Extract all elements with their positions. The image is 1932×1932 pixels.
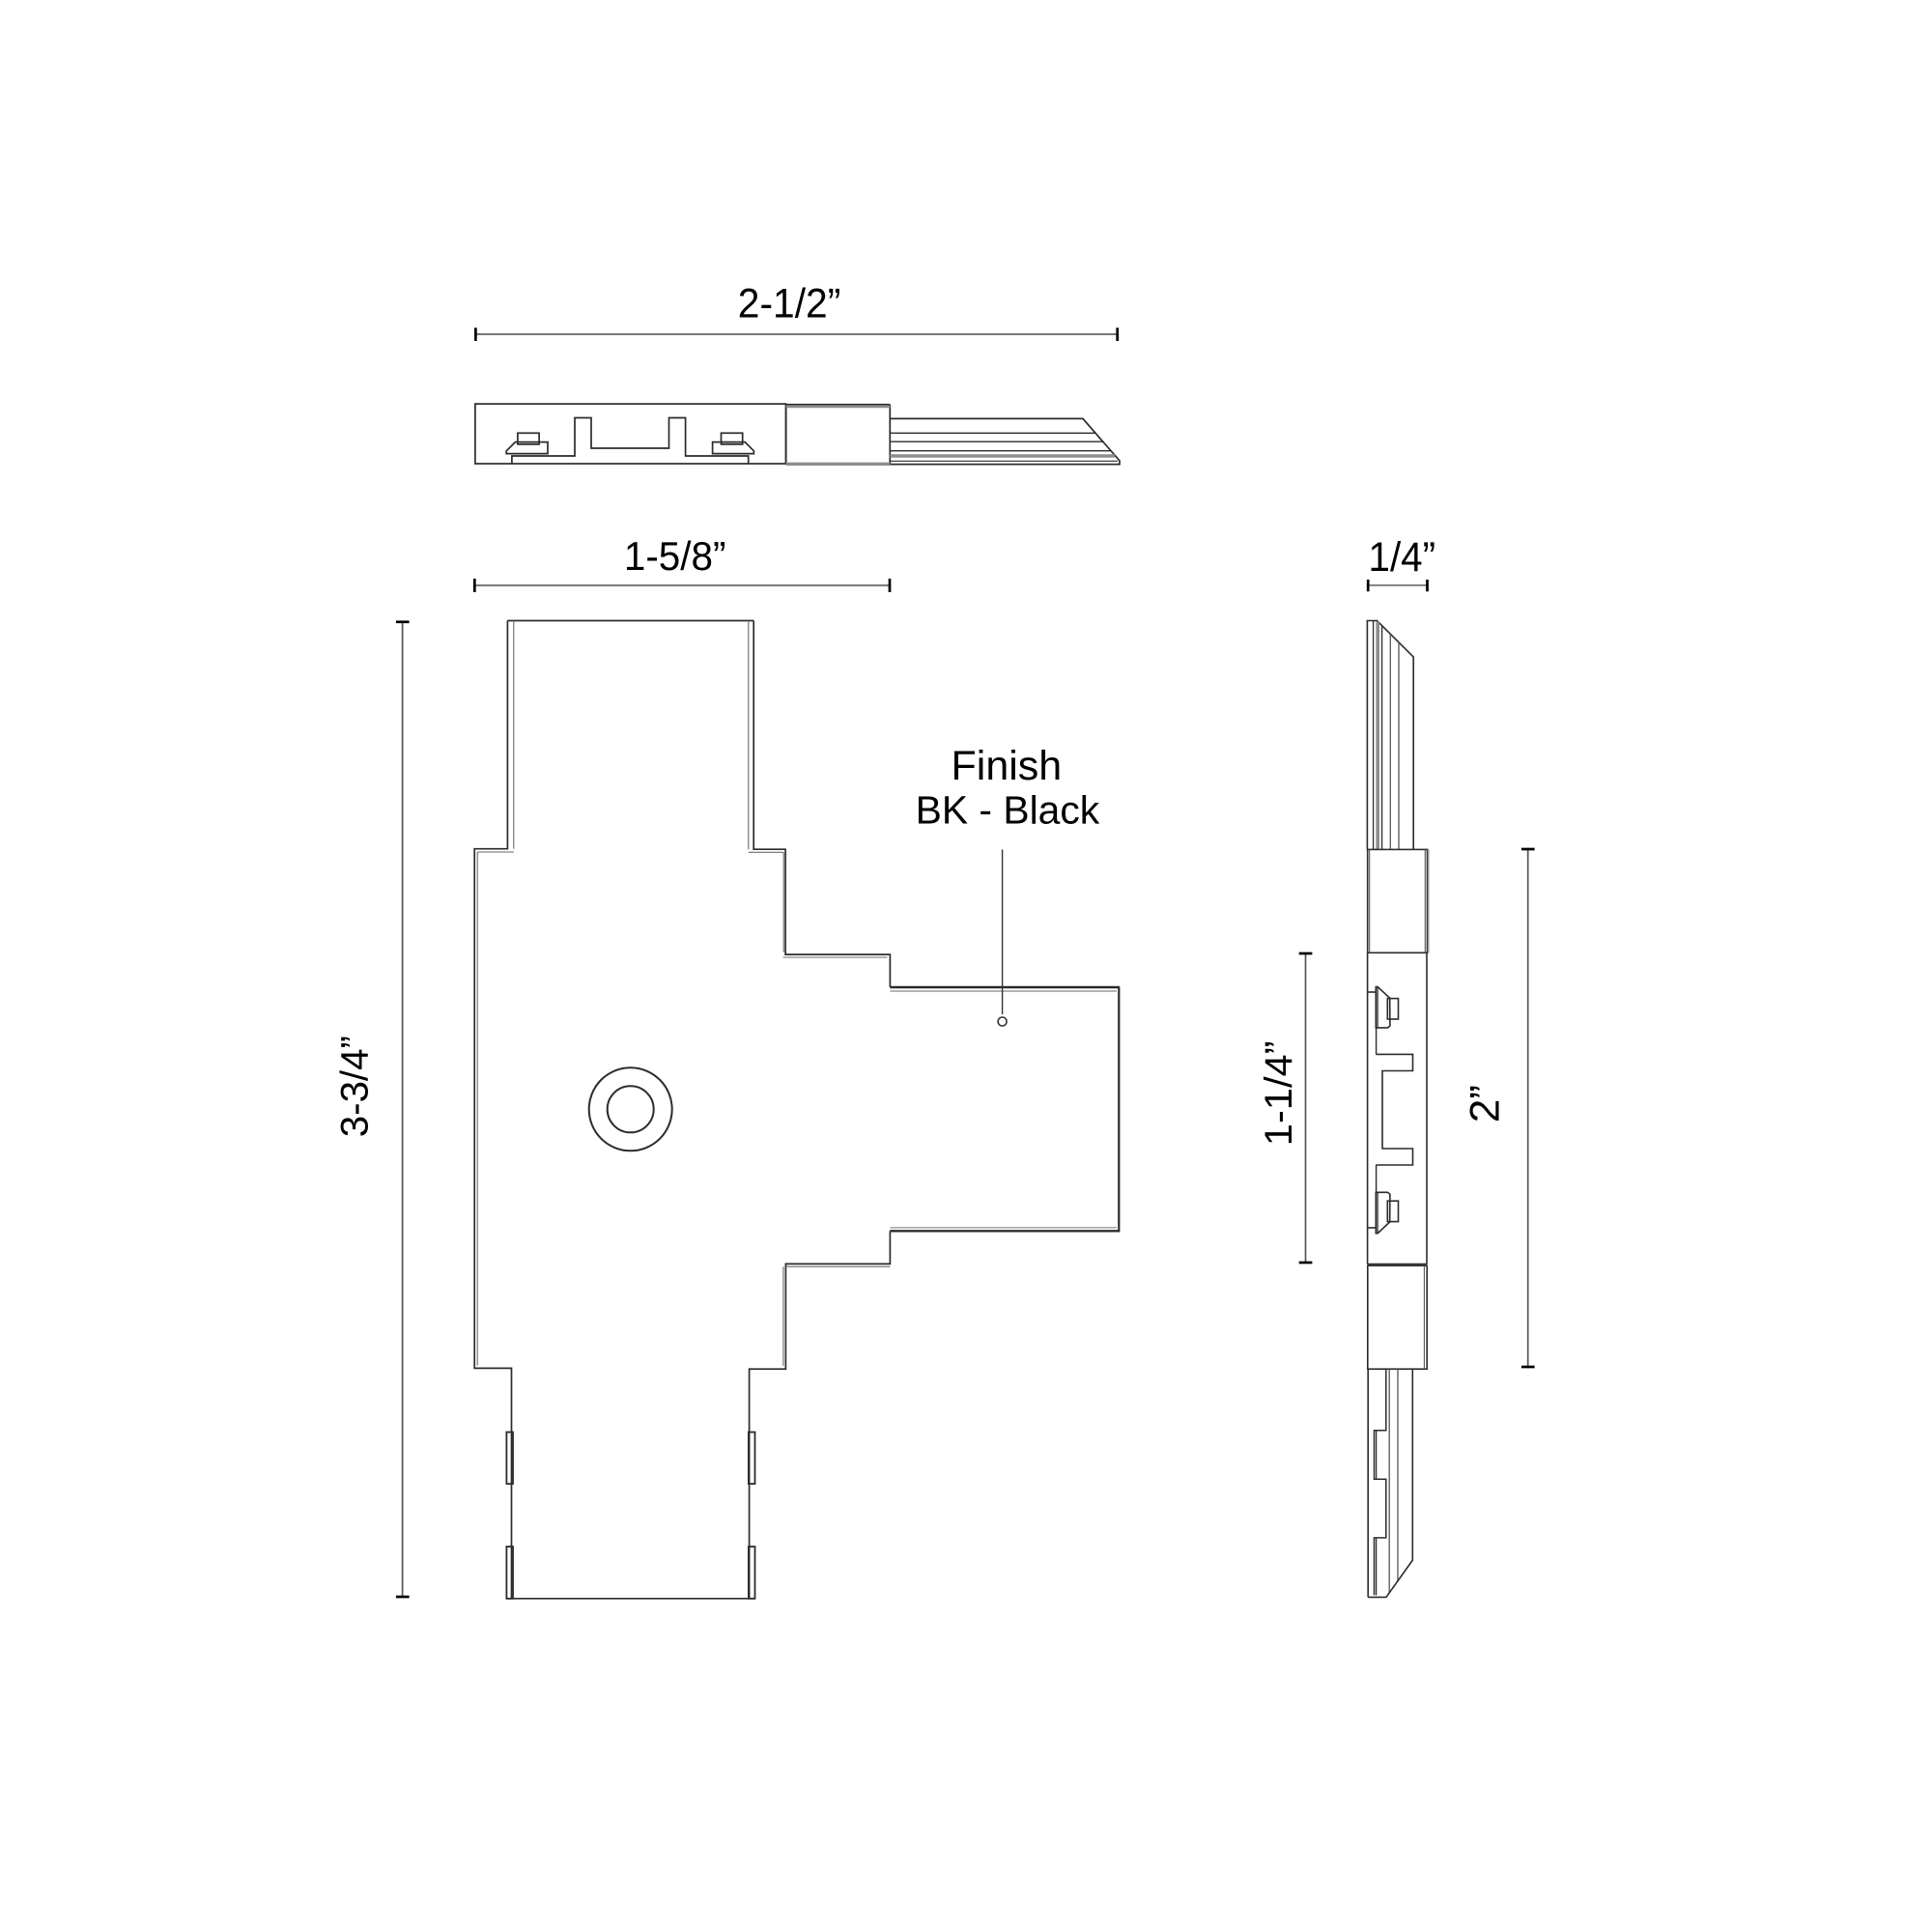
svg-text:2”: 2” xyxy=(1463,1085,1508,1122)
svg-text:3-3/4”: 3-3/4” xyxy=(334,1036,377,1137)
svg-text:BK - Black: BK - Black xyxy=(916,788,1100,833)
svg-text:Finish: Finish xyxy=(952,743,1063,789)
svg-text:1-1/4”: 1-1/4” xyxy=(1257,1040,1300,1146)
svg-text:1/4”: 1/4” xyxy=(1369,533,1436,580)
svg-text:2-1/2”: 2-1/2” xyxy=(738,280,840,327)
svg-text:1-5/8”: 1-5/8” xyxy=(624,534,726,580)
